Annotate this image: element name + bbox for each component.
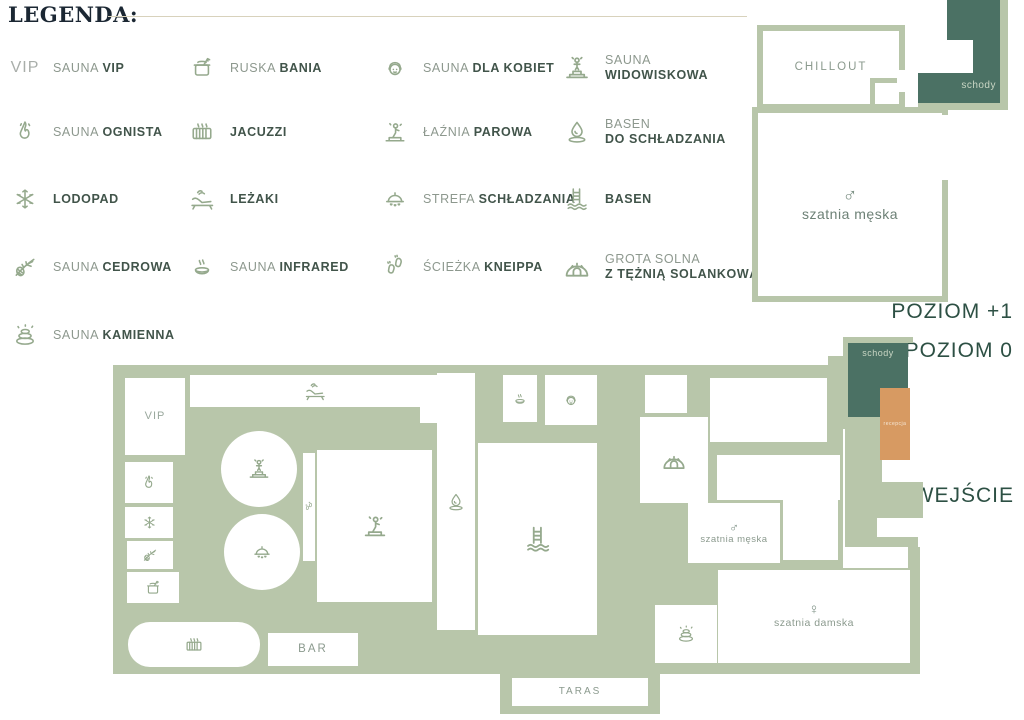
room-parowa_room [317, 450, 432, 602]
room-grota_room [640, 417, 708, 503]
legend-label: BASENDO SCHŁADZANIA [605, 117, 726, 147]
room-szatnia-meska-level1: ♂ szatnia męska [752, 107, 948, 302]
stairs-level1 [973, 40, 1000, 73]
stairs-border [918, 103, 1008, 110]
cloche-icon [250, 540, 274, 564]
legend-label: BASEN [605, 192, 652, 207]
infrared-icon [188, 253, 216, 281]
legend-item-ruska-bania: RUSKA BANIA [185, 48, 322, 88]
room-basen_room [478, 443, 597, 635]
room-wide_room [710, 378, 827, 442]
cave-icon [561, 251, 593, 283]
legend-item-sauna-cedrowa: SAUNA CEDROWA [8, 247, 172, 287]
room-ognista [125, 462, 173, 503]
stones-icon [675, 623, 697, 645]
cloche-icon [381, 185, 409, 213]
room-chillout-label: CHILLOUT [795, 60, 868, 74]
snowflake-icon [141, 514, 158, 531]
legend-label: ŚCIEŻKA KNEIPPA [423, 260, 543, 275]
legend-item-basen: BASEN [560, 179, 652, 219]
cedar-icon [11, 253, 39, 281]
room-vip-label: VIP [145, 410, 166, 424]
legend-label: LEŻAKI [230, 192, 279, 207]
legend-item-jacuzzi: JACUZZI [185, 112, 287, 152]
legend-label: SAUNA CEDROWA [53, 260, 172, 275]
room-ante_tr [645, 375, 687, 413]
room-cedrowa [127, 541, 173, 569]
stairs-level1 [947, 0, 1000, 40]
room-damska: ♀szatnia damska [718, 570, 910, 663]
ladder-icon [522, 523, 554, 555]
woman-icon [561, 390, 581, 410]
legend-item-sauna-widowiskowa: SAUNAWIDOWISKOWA [560, 48, 708, 88]
entrance-corridor [845, 413, 882, 518]
room-szatnia-meska-level1-label: szatnia męska [802, 206, 898, 224]
ladder-icon [563, 185, 591, 213]
legend-label: STREFA SCHŁADZANIA [423, 192, 575, 207]
infrared-icon [511, 390, 529, 408]
legend-item-sciezka-kneippa: ŚCIEŻKA KNEIPPA [378, 247, 543, 287]
bania-icon [188, 54, 216, 82]
cedar-icon [141, 546, 159, 564]
stones-icon [11, 321, 39, 349]
parowa-icon [381, 118, 409, 146]
legend-item-sauna-infrared: SAUNA INFRARED [185, 247, 349, 287]
jacuzzi-icon [188, 118, 216, 146]
legend-label: LODOPAD [53, 192, 119, 207]
room-chlod_strip [437, 373, 475, 630]
legend-title: LEGENDA: [8, 2, 138, 27]
podium-person-icon [246, 456, 272, 482]
room-ante_top [420, 375, 438, 423]
legend-label: SAUNA INFRARED [230, 260, 349, 275]
chillout-door-gap [898, 70, 908, 92]
snowflake-icon [11, 185, 39, 213]
legend-item-sauna-kamienna: SAUNA KAMIENNA [8, 315, 175, 355]
lounger-icon [303, 379, 327, 403]
legend-label: SAUNA DLA KOBIET [423, 61, 554, 76]
chillout-inner-wall [870, 78, 875, 107]
legend-label: SAUNA OGNISTA [53, 125, 163, 140]
spa-floor-plan-infographic: LEGENDA: VIPSAUNA VIPSAUNA OGNISTALODOPA… [0, 0, 1024, 720]
room-taras: TARAS [512, 678, 648, 706]
legend-item-basen-do-schladzania: BASENDO SCHŁADZANIA [560, 112, 726, 152]
droplet-icon [445, 491, 467, 513]
legend-item-grota-solna: GROTA SOLNAZ TĘŻNIĄ SOLANKOWĄ [560, 247, 759, 287]
male-symbol: ♂ [843, 186, 858, 206]
parowa-icon [360, 511, 390, 541]
room-kobiet_room [545, 375, 597, 425]
legend-label: SAUNAWIDOWISKOWA [605, 53, 708, 83]
legend-item-sauna-vip: VIPSAUNA VIP [8, 48, 124, 88]
room-bania [127, 572, 179, 603]
stairs-level1-label: schody [930, 80, 996, 91]
feet-icon [303, 501, 315, 513]
room-lodopad [125, 507, 173, 538]
stairs-border [1000, 0, 1008, 110]
woman-icon [381, 54, 409, 82]
legend-label: ŁAŹNIA PAROWA [423, 125, 533, 140]
room-infrared_room [503, 375, 537, 422]
legend-item-lodopad: LODOPAD [8, 179, 119, 219]
legend-item-sauna-ognista: SAUNA OGNISTA [8, 112, 163, 152]
entrance-corridor [845, 537, 918, 547]
legend-label: GROTA SOLNAZ TĘŻNIĄ SOLANKOWĄ [605, 252, 759, 282]
szatnia-door-gap [940, 115, 950, 180]
legend-item-laznia-parowa: ŁAŹNIA PAROWA [378, 112, 533, 152]
room-vip: VIP [125, 378, 185, 455]
legend-label: RUSKA BANIA [230, 61, 322, 76]
jacuzzi-icon [183, 634, 205, 656]
bania-icon [143, 578, 163, 598]
entrance-corridor [882, 482, 923, 518]
legend-item-sauna-dla-kobiet: SAUNA DLA KOBIET [378, 48, 554, 88]
room-recepcja-label: recepcja [884, 421, 907, 427]
female-symbol: ♀ [808, 602, 819, 617]
legend-label: SAUNA VIP [53, 61, 124, 76]
room-chillout: CHILLOUT [757, 25, 905, 110]
flame-icon [139, 473, 159, 493]
feet-icon [381, 253, 409, 281]
room-widow_circle [221, 431, 297, 507]
room-kamienna_room [655, 605, 717, 663]
room-kneippa_strip [303, 453, 315, 561]
room-meska0: ♂szatnia męska [688, 503, 780, 563]
lounger-icon [188, 185, 216, 213]
legend-label: JACUZZI [230, 125, 287, 140]
room-bar-label: BAR [298, 642, 328, 656]
room-schody0-label: schody [862, 348, 894, 359]
legend-label: SAUNA KAMIENNA [53, 328, 175, 343]
legend-divider [108, 16, 747, 17]
room-bar: BAR [268, 633, 358, 666]
cave-icon [659, 445, 689, 475]
label-poziom-plus1: POZIOM +1 [855, 300, 1013, 324]
male-symbol: ♂ [729, 521, 739, 534]
flame-icon [11, 118, 39, 146]
room-schlad_circle [224, 514, 300, 590]
room-corr_b [783, 455, 838, 560]
legend-item-strefa-schladzania: STREFA SCHŁADZANIA [378, 179, 575, 219]
podium-person-icon [562, 53, 592, 83]
vip-text-icon: VIP [11, 59, 40, 77]
room-recepcja: recepcja [880, 388, 910, 460]
droplet-icon [563, 118, 591, 146]
room-damska-label: szatnia damska [774, 617, 854, 630]
room-lezaki_hall [190, 375, 440, 407]
room-taras-label: TARAS [559, 686, 602, 699]
room-meska0-label: szatnia męska [700, 534, 767, 546]
room-jacuzzi_bone [128, 622, 260, 667]
legend-item-lezaki: LEŻAKI [185, 179, 279, 219]
